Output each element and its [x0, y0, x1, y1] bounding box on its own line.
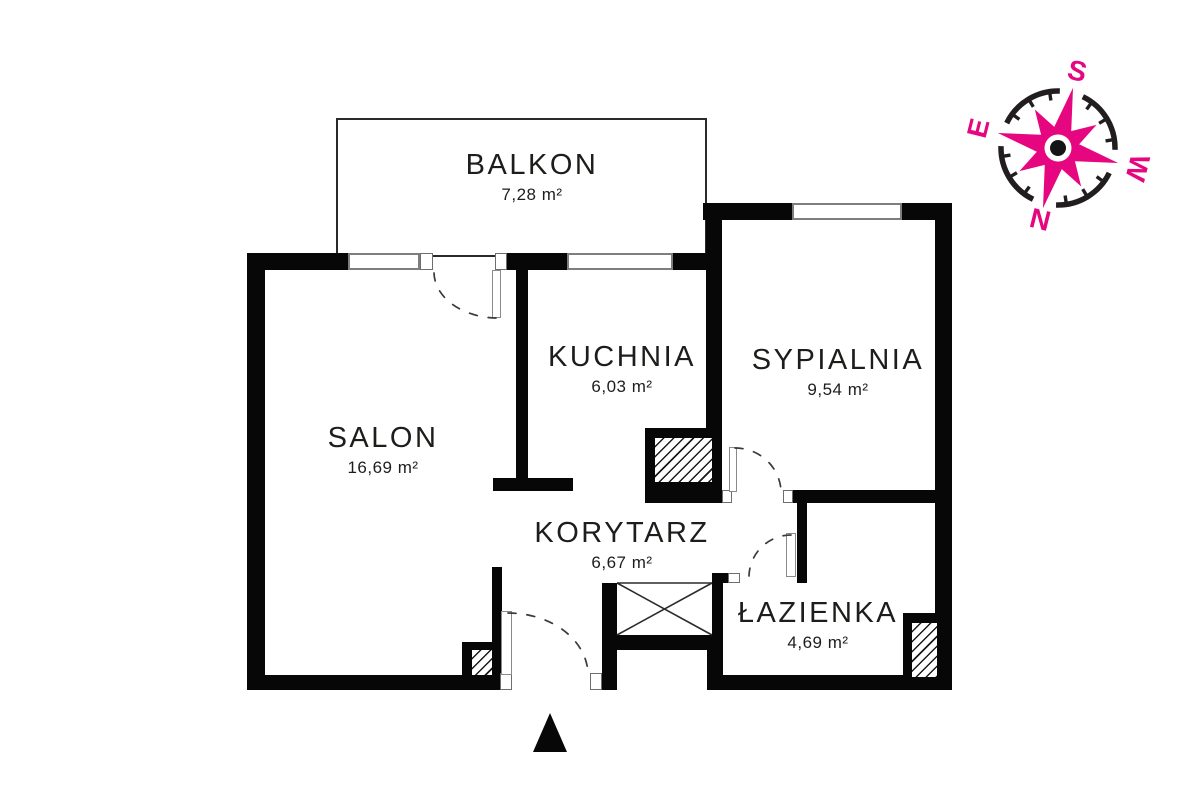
- door-leaf: [501, 611, 512, 675]
- door-jamb: [728, 573, 740, 583]
- staircase-box: [617, 583, 712, 635]
- room-label-balkon: BALKON 7,28 m²: [466, 149, 599, 205]
- wall: [602, 635, 723, 650]
- door-leaf: [729, 447, 737, 492]
- wall: [797, 503, 807, 583]
- wall: [903, 613, 912, 677]
- wall: [516, 270, 528, 482]
- room-label-korytarz: KORYTARZ 6,67 m²: [534, 517, 709, 573]
- wall: [645, 428, 712, 438]
- door-jamb: [495, 253, 507, 270]
- bathroom-door-swing: [749, 535, 791, 576]
- wall: [935, 203, 952, 690]
- wall: [645, 480, 722, 503]
- room-area: 6,67 m²: [534, 553, 709, 573]
- room-area: 6,03 m²: [548, 377, 696, 397]
- wall: [707, 650, 723, 690]
- floor-plan: S W N E BALKON 7,28 m² KUCHNIA 6,03 m² S…: [0, 0, 1200, 800]
- wall: [493, 478, 573, 491]
- door-jamb: [783, 490, 793, 503]
- window: [348, 253, 420, 270]
- room-area: 4,69 m²: [738, 633, 898, 653]
- room-area: 16,69 m²: [328, 458, 439, 478]
- balcony-door-swing: [434, 273, 496, 318]
- door-leaf: [786, 533, 796, 577]
- compass-rose: S W N E: [958, 48, 1158, 248]
- compass-letter-east: E: [961, 115, 996, 141]
- room-area: 7,28 m²: [466, 185, 599, 205]
- wall: [793, 490, 935, 503]
- door-leaf: [492, 270, 501, 318]
- room-label-salon: SALON 16,69 m²: [328, 422, 439, 478]
- room-area: 9,54 m²: [752, 380, 924, 400]
- shaft-hatch: [472, 650, 492, 675]
- window: [792, 203, 902, 220]
- room-name: KORYTARZ: [534, 517, 709, 550]
- shaft-hatch: [912, 623, 937, 677]
- door-jamb: [420, 253, 433, 270]
- shaft-hatch: [655, 438, 712, 482]
- room-label-sypialnia: SYPIALNIA 9,54 m²: [752, 344, 924, 400]
- compass-letter-south: S: [1064, 54, 1090, 89]
- entrance-door-swing: [508, 613, 588, 675]
- wall: [247, 253, 265, 690]
- door-jamb: [500, 673, 512, 690]
- room-name: KUCHNIA: [548, 341, 696, 374]
- room-label-kuchnia: KUCHNIA 6,03 m²: [548, 341, 696, 397]
- room-name: SALON: [328, 422, 439, 455]
- wall: [507, 253, 567, 270]
- window: [567, 253, 673, 270]
- wall: [462, 642, 502, 650]
- compass-letter-north: N: [1027, 202, 1054, 237]
- room-label-lazienka: ŁAZIENKA 4,69 m²: [738, 597, 898, 653]
- room-name: ŁAZIENKA: [738, 597, 898, 630]
- room-name: SYPIALNIA: [752, 344, 924, 377]
- door-jamb: [590, 673, 602, 690]
- wall: [707, 675, 952, 690]
- bedroom-door-swing: [735, 448, 781, 491]
- wall: [247, 675, 500, 690]
- room-name: BALKON: [466, 149, 599, 182]
- compass-letter-west: W: [1119, 151, 1156, 185]
- entrance-arrow: [533, 713, 567, 752]
